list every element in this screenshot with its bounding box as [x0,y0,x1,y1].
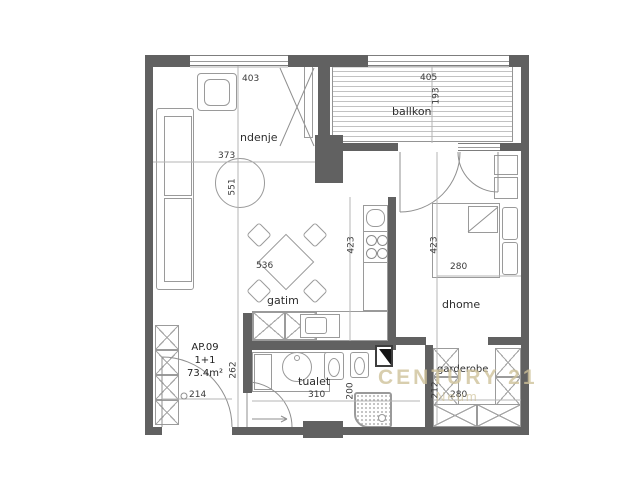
apartment-area: 73.4m² [175,367,235,380]
apartment-code: AP.09 [175,341,235,354]
dim-bedroom-height: 423 [430,236,440,253]
dim-bath-width: 310 [308,390,325,400]
wall-hall-bath [243,313,252,393]
room-label-balcony: ballkon [392,105,432,118]
living-window [190,55,288,66]
wall-bottom-c [341,427,529,435]
bath-door-arrow [252,416,287,422]
room-label-kitchen: gatim [267,294,299,307]
dim-hall-height: 262 [229,361,239,378]
room-label-living: ndenje [240,131,278,144]
door-hinge-dot [181,393,187,399]
apartment-info: AP.09 1+1 73.4m² [175,341,235,380]
balcony-door-swing [458,152,498,192]
dim-living-top: 403 [242,74,259,84]
watermark-brand: CENTURY 21 [378,366,538,390]
wall-top-pier-left [145,55,190,67]
wall-balcony-b [500,143,529,151]
wall-bedroom-closet-a [396,337,426,345]
wall-kitchen-bath [243,341,396,350]
dim-living-height: 551 [228,178,238,195]
dim-bedroom-width: 280 [450,262,467,272]
wall-bottom-a [145,427,162,435]
living-side-window [304,66,313,138]
wall-bottom-pier [303,421,343,438]
wall-pillar-block [315,135,343,183]
wall-left [145,55,153,435]
room-label-bedroom: dhome [442,298,480,311]
dim-living-width: 373 [218,151,235,161]
dim-balcony-depth: 193 [432,87,442,104]
floor-plan: ndenje ballkon gatim dhome tualet garder… [0,0,640,480]
bedroom-door-swing [400,152,460,212]
wall-kitchen-bedroom [388,197,396,345]
watermark-location: Neum [436,389,479,404]
dim-bath-depth: 200 [346,382,356,399]
wall-bottom-b [232,427,303,435]
pillow-fold [468,207,498,232]
dim-kitchen-height: 423 [347,236,357,253]
dim-balcony-top: 405 [420,73,437,83]
apartment-layout: 1+1 [175,354,235,367]
balcony-window [368,55,509,66]
wall-bedroom-closet-b [488,337,521,345]
balcony-door-sill [458,143,500,151]
dim-kitchen-width: 536 [256,261,273,271]
wall-balcony-a [343,143,398,151]
wall-pillar-stem [318,63,330,135]
room-label-bathroom: tualet [298,375,330,388]
shaft-triangle [379,349,391,365]
dim-entry-door: 214 [189,390,206,400]
